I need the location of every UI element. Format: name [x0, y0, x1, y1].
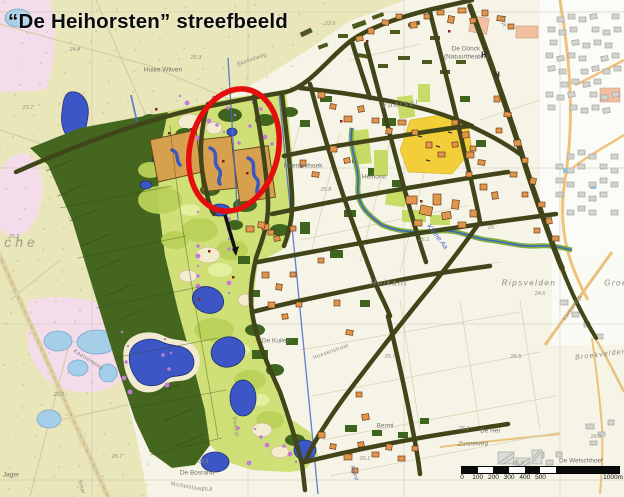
map-title: “De Heihorsten” streefbeeld: [8, 10, 288, 34]
scale-bar: 01002003004005001000m: [461, 466, 619, 483]
scale-end-label: 1000m: [603, 474, 623, 481]
scale-bar-segments: [461, 466, 620, 474]
scale-tick: 0: [460, 474, 464, 481]
map-graphic: [0, 0, 624, 497]
scale-tick: 500: [535, 474, 546, 481]
scale-tick: 100: [472, 474, 483, 481]
scale-tick: 400: [519, 474, 530, 481]
scale-bar-ticks: 01002003004005001000m: [461, 474, 619, 483]
scale-tick: 300: [504, 474, 515, 481]
scale-tick: 200: [488, 474, 499, 481]
map-canvas: “De Heihorsten” streefbeeld Huize Witven…: [0, 0, 624, 497]
